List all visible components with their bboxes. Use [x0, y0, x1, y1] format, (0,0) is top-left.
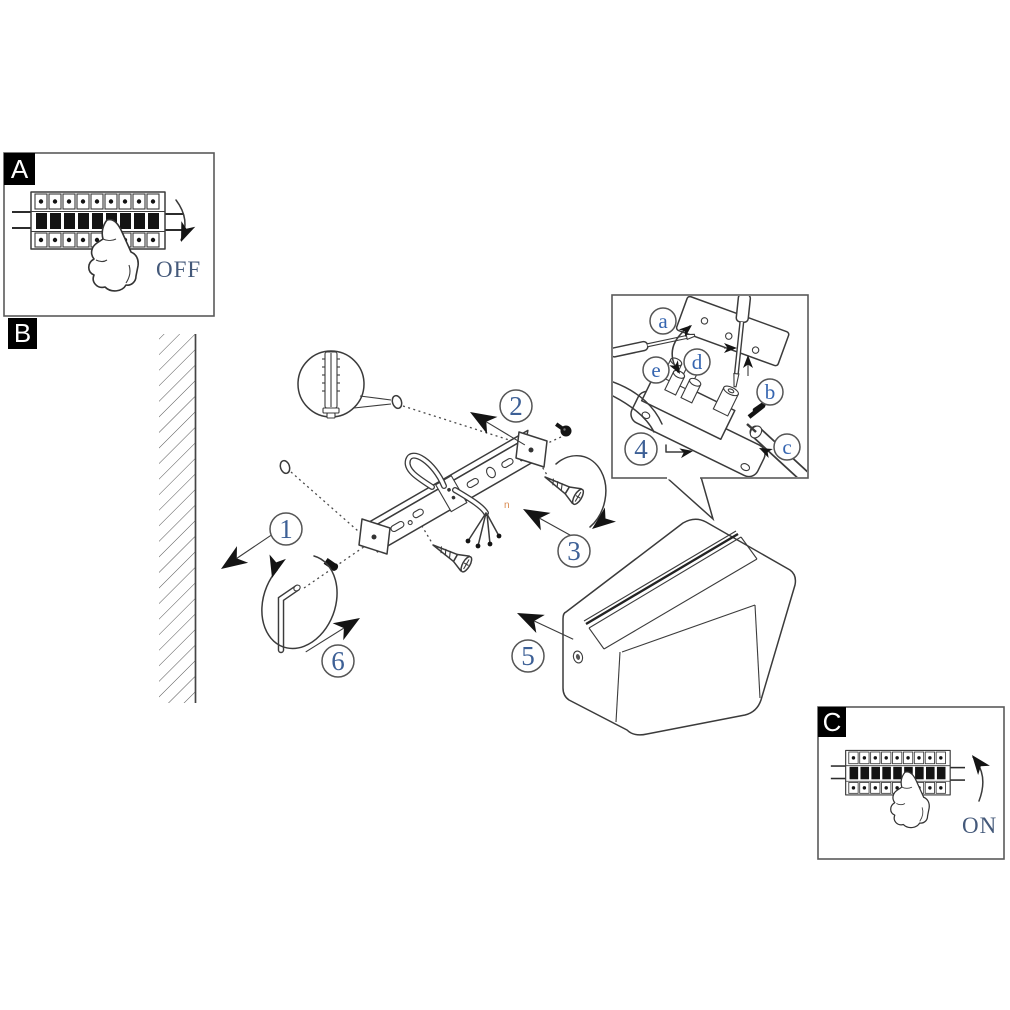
mounting-screw-right — [541, 470, 586, 506]
step-6-badge: 6 — [322, 645, 354, 677]
diagram-svg: a d e b c 4 — [0, 0, 1010, 1010]
breaker-strip-icon — [831, 750, 965, 794]
callout-b-badge: b — [757, 379, 783, 405]
step-4-badge: 4 — [625, 433, 657, 465]
wall-anchor-top-icon — [391, 394, 404, 409]
anchor-magnifier — [298, 351, 391, 418]
magnifier-pointer-line — [360, 396, 391, 400]
panel-a: A OFF — [4, 153, 214, 316]
panel-b-label: B — [14, 318, 31, 348]
wall-plug-icon — [322, 352, 340, 418]
callout-b-label: b — [765, 380, 776, 404]
panel-a-label: A — [11, 154, 29, 184]
step-6-label: 6 — [331, 646, 345, 676]
magnifier-pointer-line — [354, 404, 391, 408]
step-2-badge: 2 — [500, 390, 532, 422]
step-4-label: 4 — [634, 434, 648, 464]
lamp-body — [563, 519, 795, 735]
wall-anchor-left-icon — [279, 459, 292, 474]
wall-hatch — [159, 334, 196, 703]
wall-section — [159, 334, 196, 703]
callout-d-label: d — [692, 350, 703, 374]
step-5-badge: 5 — [512, 640, 544, 672]
step-1-label: 1 — [279, 514, 293, 544]
stray-mark-text: n — [504, 500, 510, 511]
step-1-badge: 1 — [270, 513, 302, 545]
detail-inset-4: a d e b c 4 — [610, 294, 808, 519]
callout-c-badge: c — [774, 434, 800, 460]
rotation-arrowhead-icon — [264, 554, 286, 580]
inset-pointer-tail — [666, 477, 713, 519]
step-5-label: 5 — [521, 641, 535, 671]
callout-e-badge: e — [643, 357, 669, 383]
step-2-label: 2 — [509, 391, 523, 421]
callout-a-label: a — [658, 309, 668, 333]
panel-b: B — [8, 318, 37, 349]
panel-c: C ON — [818, 707, 1004, 859]
callout-e-label: e — [651, 358, 660, 382]
instruction-sheet: a d e b c 4 — [0, 0, 1010, 1010]
bracket-screw-icon — [555, 422, 571, 436]
step-3-badge: 3 — [558, 535, 590, 567]
callout-c-label: c — [782, 435, 791, 459]
callout-a-badge: a — [650, 308, 676, 334]
callout-d-badge: d — [684, 349, 710, 375]
step-3-label: 3 — [567, 536, 581, 566]
status-on-text: ON — [962, 813, 997, 838]
hex-key-icon — [281, 584, 301, 650]
status-off-text: OFF — [156, 257, 201, 282]
breaker-strip-icon — [12, 192, 184, 249]
panel-c-label: C — [823, 707, 842, 737]
